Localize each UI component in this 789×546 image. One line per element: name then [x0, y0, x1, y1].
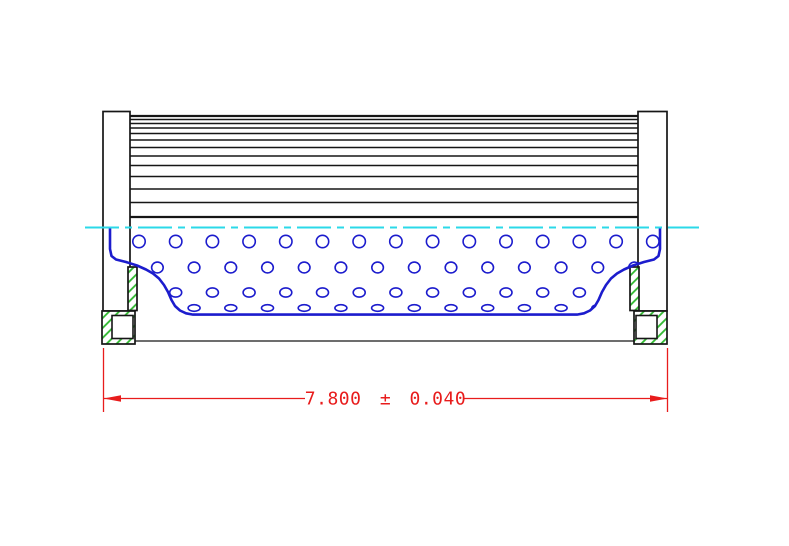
end-cap-left-wall	[103, 112, 130, 312]
end-cap-right-wall	[638, 112, 667, 312]
perforation-hole	[573, 288, 585, 297]
perforation-hole	[262, 262, 274, 273]
perforation-hole	[500, 235, 512, 247]
perforation-hole	[408, 305, 420, 312]
cad-viewport: 7.800 ± 0.040	[0, 0, 789, 546]
perforation-hole	[243, 235, 255, 247]
perforation-hole	[390, 288, 402, 297]
perforation-hole	[225, 305, 237, 312]
perforation-hole	[133, 235, 145, 247]
perforation-hole	[298, 262, 310, 273]
perforation-hole	[463, 288, 475, 297]
perforation-hole	[537, 288, 549, 297]
pleated-media	[130, 116, 638, 217]
arrowhead-left-icon	[104, 395, 122, 402]
perforation-hole	[316, 235, 328, 247]
perforation-hole	[390, 235, 402, 247]
perforation-hole	[335, 262, 347, 273]
perforation-hole	[426, 235, 438, 247]
perforation-hole	[482, 262, 494, 273]
perforation-hole	[151, 305, 163, 312]
perforation-hole	[298, 305, 310, 312]
perforation-hole	[445, 305, 457, 312]
end-cap-left-foot-bore	[112, 316, 133, 339]
perforation-hole	[555, 262, 567, 273]
perforation-hole	[482, 305, 494, 312]
end-cap-right-foot-bore	[636, 316, 657, 339]
perforation-hole	[280, 235, 292, 247]
perforation-hole	[610, 235, 622, 247]
perforation-hole	[427, 288, 439, 297]
perforation-hole	[555, 305, 567, 312]
perforation-hole	[170, 235, 182, 247]
perforation-hole	[353, 288, 365, 297]
perforation-hole	[409, 262, 421, 273]
dimension-label: 7.800 ± 0.040	[305, 389, 466, 410]
perforation-hole	[335, 305, 347, 312]
perforation-hole	[445, 262, 457, 273]
perforation-hole	[372, 262, 384, 273]
end-cap-right-gasket-strip	[630, 267, 639, 311]
perforation-hole	[500, 288, 512, 297]
perforation-hole	[372, 305, 384, 312]
end-cap-left-gasket-strip	[128, 267, 137, 311]
perforation-hole	[152, 262, 164, 273]
perforation-hole	[592, 262, 604, 273]
perforation-hole	[518, 305, 530, 312]
perforation-hole	[353, 235, 365, 247]
perforation-hole	[463, 235, 475, 247]
perforation-hole	[170, 288, 182, 297]
perforation-hole	[519, 262, 531, 273]
perforated-core-holes	[133, 235, 659, 311]
dimension-annotation: 7.800 ± 0.040	[104, 348, 668, 412]
perforation-hole	[188, 262, 200, 273]
perforation-hole	[188, 305, 200, 312]
perforation-hole	[573, 235, 585, 247]
perforation-hole	[243, 288, 255, 297]
perforation-hole	[280, 288, 292, 297]
perforation-hole	[206, 288, 218, 297]
perforation-hole	[317, 288, 329, 297]
perforation-hole	[610, 288, 622, 297]
perforation-hole	[262, 305, 274, 312]
perforation-hole	[537, 235, 549, 247]
perforation-hole	[206, 235, 218, 247]
filter-element-drawing: 7.800 ± 0.040	[0, 0, 789, 546]
arrowhead-right-icon	[650, 395, 668, 402]
perforation-hole	[225, 262, 237, 273]
perforated-core-profile	[110, 229, 660, 315]
